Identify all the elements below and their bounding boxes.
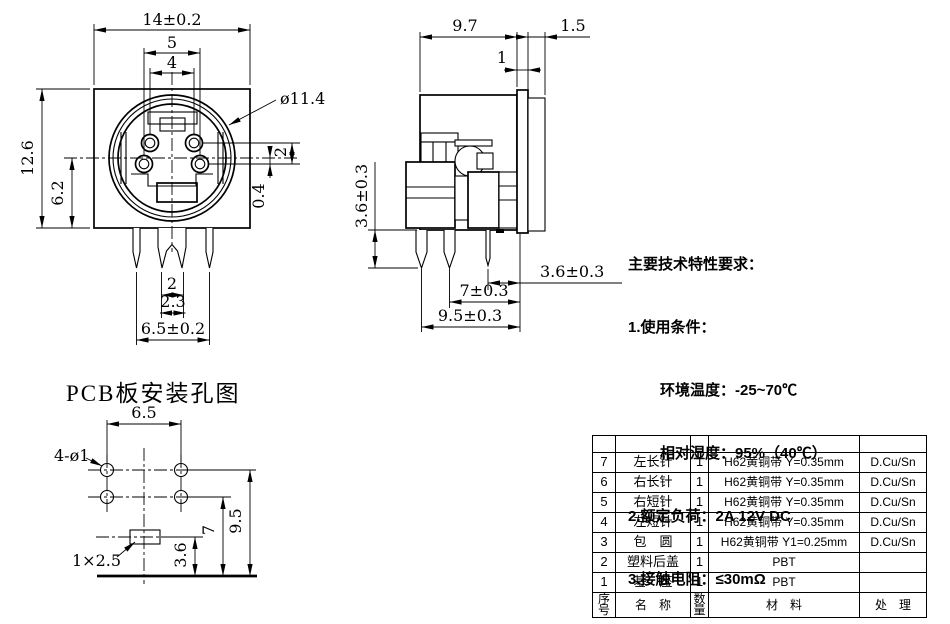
dim-front-height: 12.6 [18,140,37,176]
dim-side-pin-length: 3.6±0.3 [352,164,371,228]
table-row: 7左长针 1H62黄铜带 Y=0.35mm D.Cu/Sn [593,453,927,473]
dim-side-depth: 9.7 [452,16,477,35]
drawing-canvas: 14±0.2 5 4 ø11.4 12.6 6.2 2 0.4 2 2.3 6.… [0,0,950,624]
col-header-qty: 数量 [691,593,709,618]
pcb-hole-view: 6.5 4-ø1 1×2.5 9.5 7 3.6 [54,403,258,584]
dim-front-pin-rows: 2 [271,147,290,157]
side-view: 9.7 1.5 1 3.6±0.3 3.6±0.3 7±0.3 9.5±0.3 [352,16,622,332]
dim-row2: 7 [199,525,218,535]
side-pin-short [486,230,490,266]
dim-front-diameter: ø11.4 [280,89,325,108]
col-header-finish: 处 理 [860,593,927,618]
table-row: 2塑料后盖 1PBT [593,553,927,573]
flange-plate [517,90,528,233]
label-holes: 4-ø1 [54,446,89,465]
col-header-name: 名 称 [616,593,691,618]
dim-front-offset: 0.4 [249,183,268,208]
tech-specs-line: 环境温度：-25~70℃ [628,380,876,401]
dim-front-center-bottom: 6.2 [48,180,67,205]
dim-row1: 9.5 [226,508,245,533]
dim-fork-pitch: 2 [167,274,177,293]
dim-fork-width: 2.3 [160,292,185,311]
table-row: 1基 座 1PBT [593,573,927,593]
dim-side-pin3: 3.6±0.3 [540,262,604,281]
board-lock-tab [496,229,504,233]
front-view: 14±0.2 5 4 ø11.4 12.6 6.2 2 0.4 2 2.3 6.… [18,10,325,345]
col-header-material: 材 料 [709,593,860,618]
dim-side-pin2: 7±0.3 [459,281,508,300]
side-pin-long2 [444,230,455,268]
label-slot: 1×2.5 [72,551,121,570]
parts-table: 7左长针 1H62黄铜带 Y=0.35mm D.Cu/Sn 6右长针 1H62黄… [592,435,927,618]
front-left-pin [133,228,140,268]
rear-plate [528,98,545,231]
side-pin-long1 [416,230,427,268]
table-row-empty [593,436,927,453]
table-row: 6右长针 1H62黄铜带 Y=0.35mm D.Cu/Sn [593,473,927,493]
dim-slot-offset: 3.6 [171,542,190,567]
pcb-view-title: PCB板安装孔图 [66,374,240,408]
dim-front-width: 14±0.2 [142,10,201,29]
dim-front-span5: 5 [167,33,177,52]
dim-side-flange: 1.5 [560,16,585,35]
dim-front-pin-pitch: 6.5±0.2 [141,319,205,338]
table-header-row: 序号 名 称 数量 材 料 处 理 [593,593,927,618]
table-row: 4左短针 1H62黄铜带 Y=0.35mm D.Cu/Sn [593,513,927,533]
tech-specs-line: 1.使用条件： [628,317,876,338]
front-right-pin [206,228,213,268]
dim-side-pin1: 9.5±0.3 [438,306,502,325]
col-header-index: 序号 [593,593,616,618]
dim-front-span4: 4 [167,53,177,72]
table-row: 3包 圆 1H62黄铜带 Y1=0.25mm D.Cu/Sn [593,533,927,553]
dim-side-panel: 1 [497,48,507,67]
table-row: 5右短针 1H62黄铜带 Y=0.35mm D.Cu/Sn [593,493,927,513]
tech-specs-title: 主要技术特性要求： [628,254,876,275]
side-front-block [406,162,455,228]
